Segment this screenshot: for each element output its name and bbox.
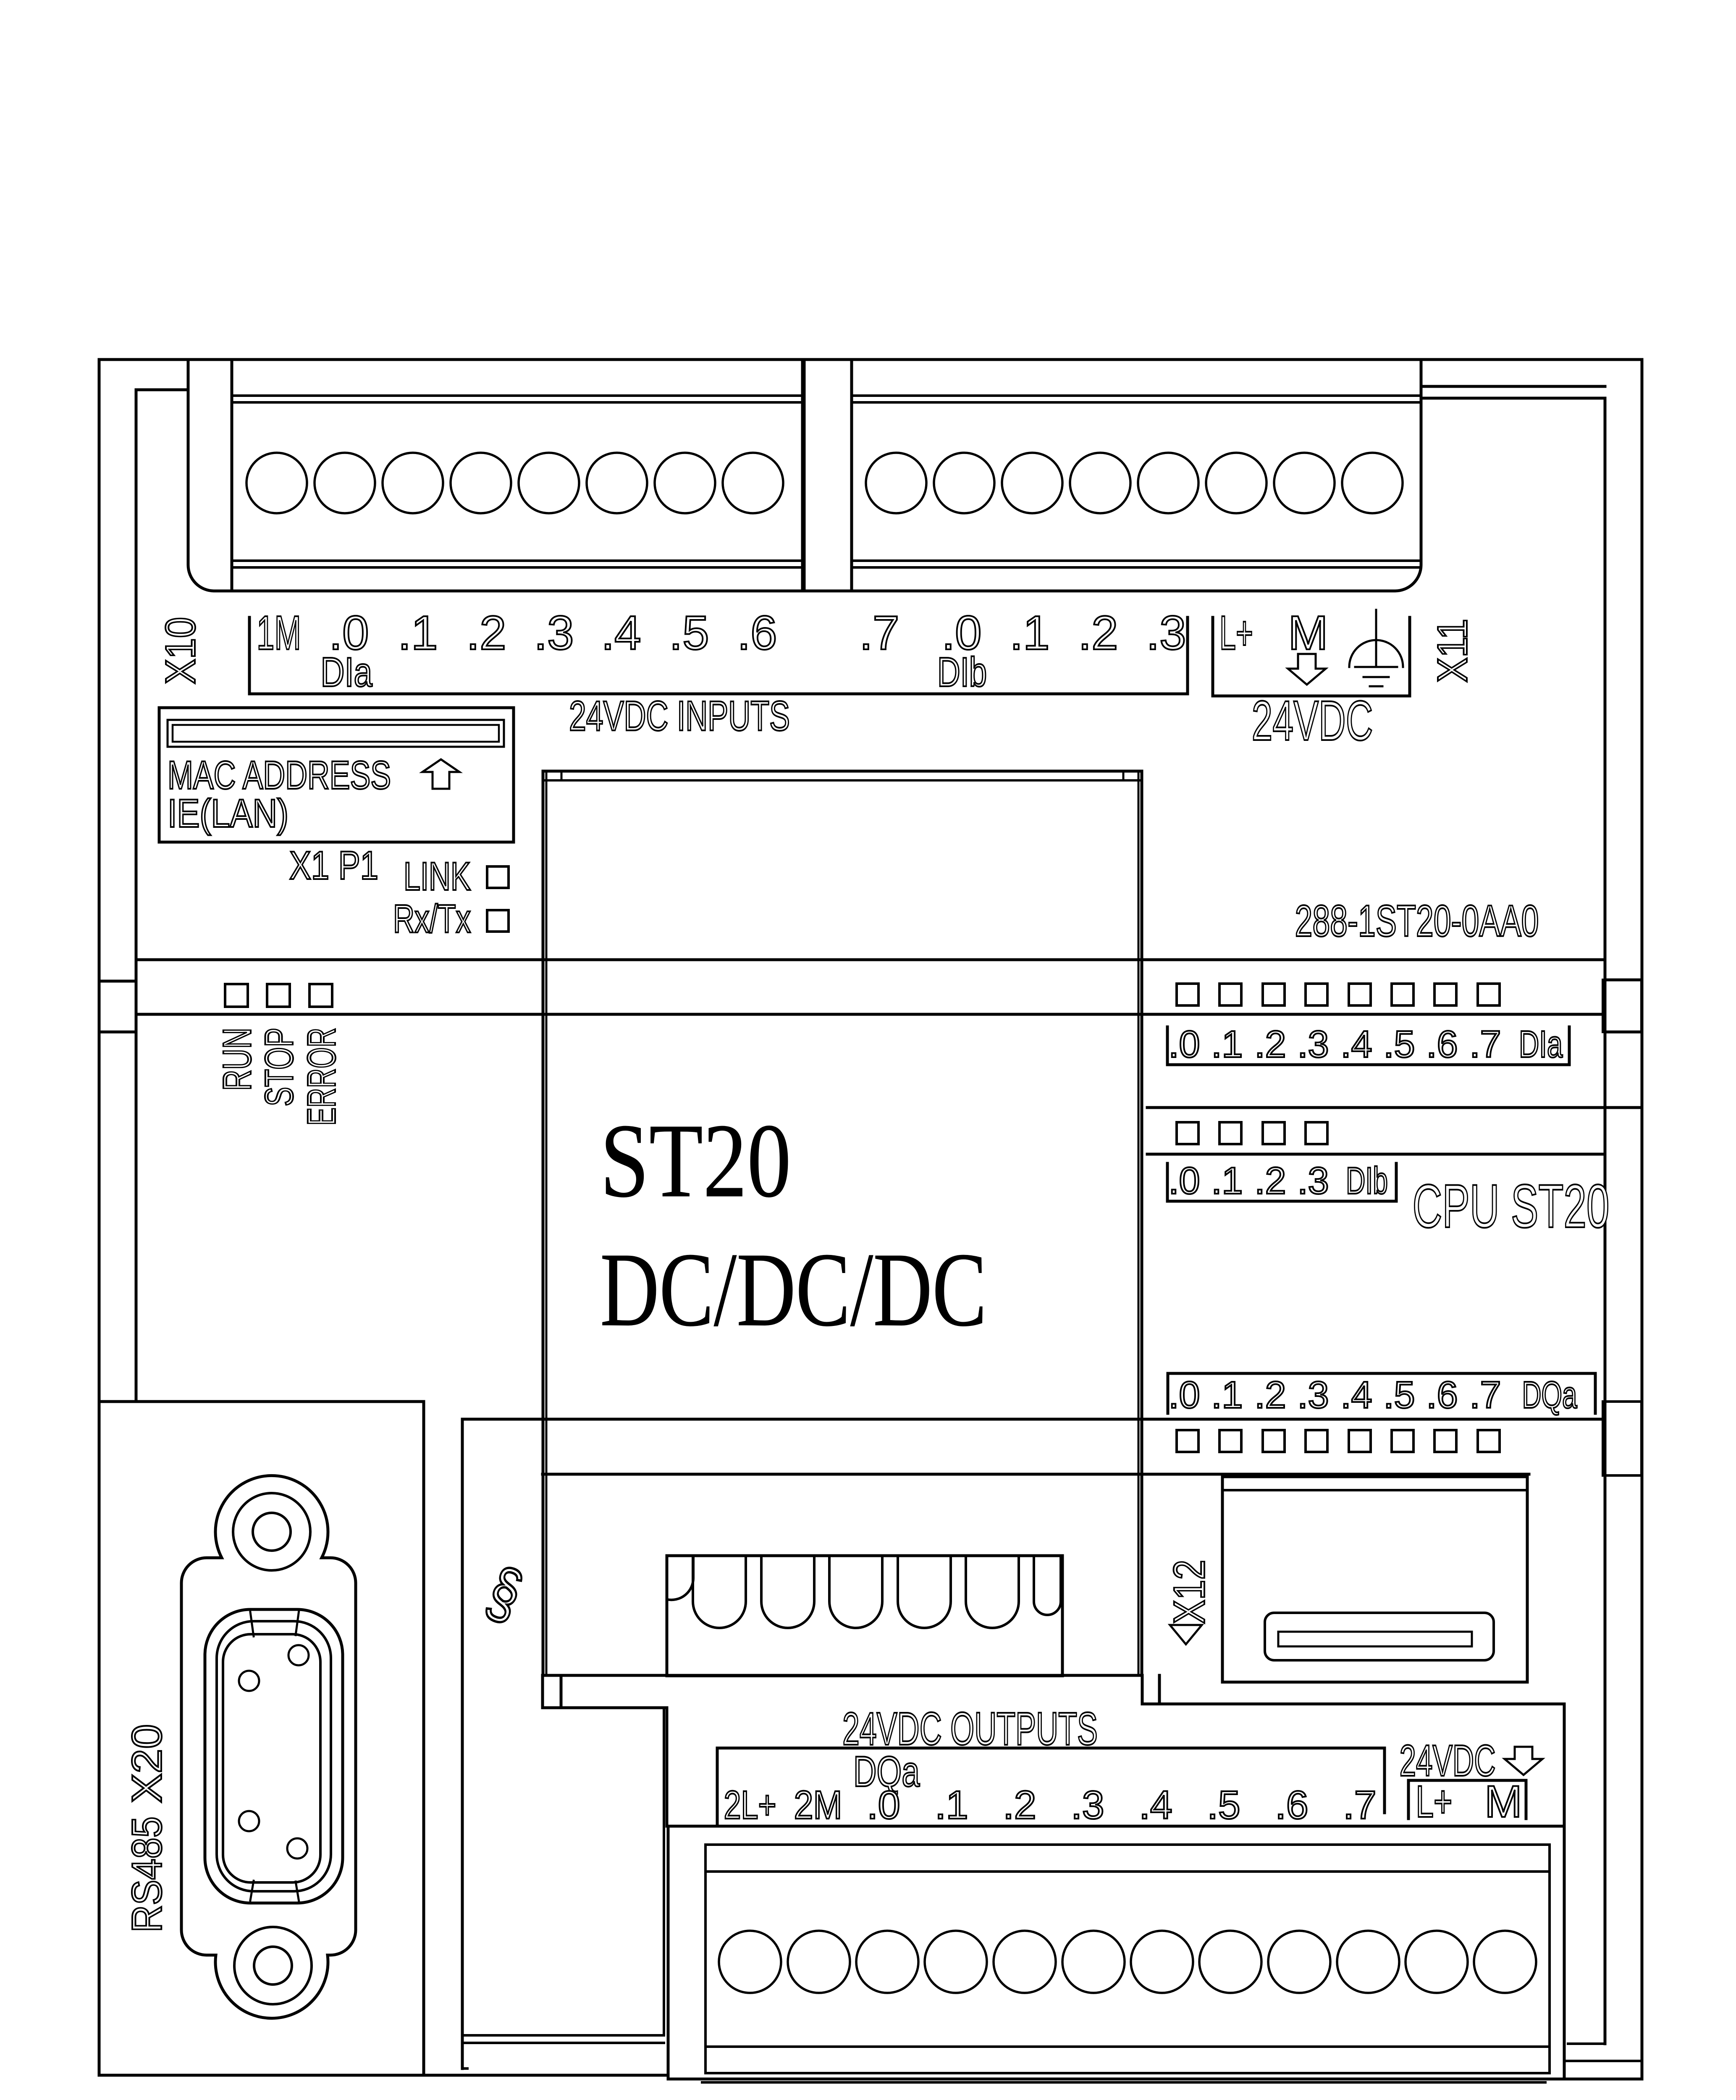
- svg-text:STOP: STOP: [257, 1028, 302, 1106]
- svg-text:DIa: DIa: [1519, 1024, 1563, 1066]
- svg-text:X1 P1: X1 P1: [289, 843, 378, 888]
- svg-text:ST20: ST20: [600, 1102, 791, 1219]
- svg-text:.5: .5: [1383, 1374, 1415, 1416]
- svg-text:L+: L+: [1219, 606, 1253, 660]
- svg-text:.2: .2: [1254, 1374, 1286, 1416]
- svg-text:X12: X12: [1165, 1560, 1214, 1624]
- svg-text:.1: .1: [1211, 1160, 1243, 1202]
- svg-text:RS485: RS485: [123, 1816, 170, 1932]
- svg-text:24VDC: 24VDC: [1252, 690, 1373, 752]
- svg-text:.6: .6: [1426, 1024, 1458, 1066]
- svg-text:L+: L+: [1416, 1776, 1453, 1827]
- svg-text:.0: .0: [1168, 1024, 1200, 1066]
- svg-text:.7: .7: [1469, 1374, 1501, 1416]
- svg-text:.5: .5: [669, 606, 709, 660]
- svg-text:.2: .2: [1078, 606, 1118, 660]
- svg-text:.3: .3: [1071, 1783, 1104, 1827]
- svg-text:.5: .5: [1383, 1024, 1415, 1066]
- svg-text:.6: .6: [737, 606, 777, 660]
- svg-text:LINK: LINK: [404, 854, 471, 899]
- svg-text:.1: .1: [935, 1783, 968, 1827]
- svg-text:.1: .1: [1211, 1374, 1243, 1416]
- svg-text:.3: .3: [1297, 1374, 1329, 1416]
- svg-text:.4: .4: [1340, 1374, 1372, 1416]
- svg-text:DIa: DIa: [321, 649, 372, 695]
- svg-text:.2: .2: [1254, 1160, 1286, 1202]
- svg-text:IE(LAN): IE(LAN): [168, 791, 288, 836]
- svg-text:.0: .0: [1168, 1160, 1200, 1202]
- svg-text:.7: .7: [859, 606, 899, 660]
- svg-text:M: M: [1288, 606, 1328, 660]
- svg-text:DC/DC/DC: DC/DC/DC: [600, 1231, 987, 1348]
- svg-text:.5: .5: [1207, 1783, 1240, 1827]
- svg-text:DQa: DQa: [1522, 1374, 1578, 1416]
- svg-text:.6: .6: [1426, 1374, 1458, 1416]
- svg-text:.3: .3: [1297, 1024, 1329, 1066]
- svg-text:.2: .2: [1254, 1024, 1286, 1066]
- svg-text:RUN: RUN: [215, 1028, 260, 1091]
- svg-text:.0: .0: [1168, 1374, 1200, 1416]
- svg-text:.1: .1: [1211, 1024, 1243, 1066]
- svg-text:.6: .6: [1275, 1783, 1308, 1827]
- svg-text:DIb: DIb: [937, 649, 987, 695]
- svg-text:.2: .2: [466, 606, 506, 660]
- svg-text:2M: 2M: [794, 1783, 842, 1827]
- svg-text:.3: .3: [1297, 1160, 1329, 1202]
- svg-text:.4: .4: [601, 606, 641, 660]
- svg-text:.7: .7: [1343, 1783, 1376, 1827]
- svg-text:.0: .0: [867, 1783, 900, 1827]
- svg-text:.2: .2: [1003, 1783, 1036, 1827]
- svg-text:.3: .3: [1146, 606, 1186, 660]
- svg-text:CPU ST20: CPU ST20: [1413, 1172, 1610, 1240]
- svg-text:M: M: [1484, 1776, 1522, 1827]
- svg-text:.7: .7: [1469, 1024, 1501, 1066]
- svg-text:24VDC INPUTS: 24VDC INPUTS: [569, 693, 790, 740]
- svg-text:Rx/Tx: Rx/Tx: [393, 897, 471, 941]
- svg-text:ERROR: ERROR: [299, 1028, 344, 1126]
- svg-text:.4: .4: [1340, 1024, 1372, 1066]
- svg-text:DIb: DIb: [1346, 1160, 1388, 1202]
- svg-text:X11: X11: [1429, 619, 1476, 682]
- svg-text:.4: .4: [1139, 1783, 1172, 1827]
- svg-text:.1: .1: [1010, 606, 1049, 660]
- svg-text:X20: X20: [123, 1724, 170, 1803]
- svg-text:.1: .1: [398, 606, 438, 660]
- svg-text:1M: 1M: [257, 606, 301, 660]
- svg-text:.3: .3: [534, 606, 574, 660]
- svg-text:288-1ST20-0AA0: 288-1ST20-0AA0: [1295, 896, 1539, 946]
- svg-text:2L+: 2L+: [724, 1783, 776, 1827]
- svg-text:X10: X10: [157, 617, 204, 684]
